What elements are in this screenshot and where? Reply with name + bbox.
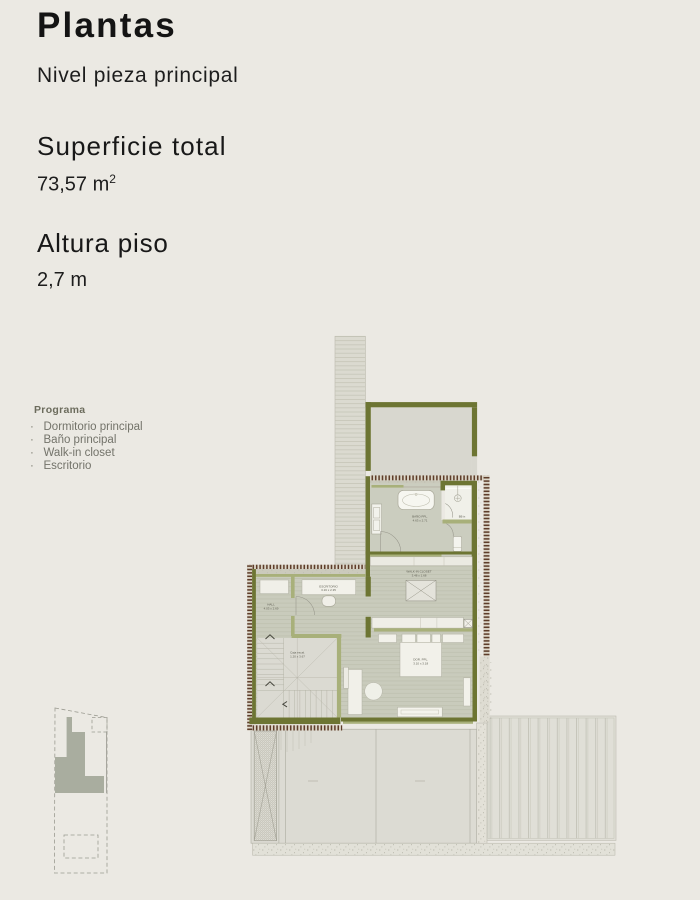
svg-text:1.20 x 3.67: 1.20 x 3.67 [290,654,305,658]
svg-text:3.16 x 2.35: 3.16 x 2.35 [321,588,336,592]
svg-text:3.48 x 1.68: 3.48 x 1.68 [412,573,427,577]
svg-text:BB in: BB in [459,515,466,519]
svg-text:4.03 x 2.69: 4.03 x 2.69 [264,606,279,610]
svg-text:4.63 x 2.71: 4.63 x 2.71 [413,518,428,522]
svg-text:3.10 x 3.18: 3.10 x 3.18 [413,661,428,665]
